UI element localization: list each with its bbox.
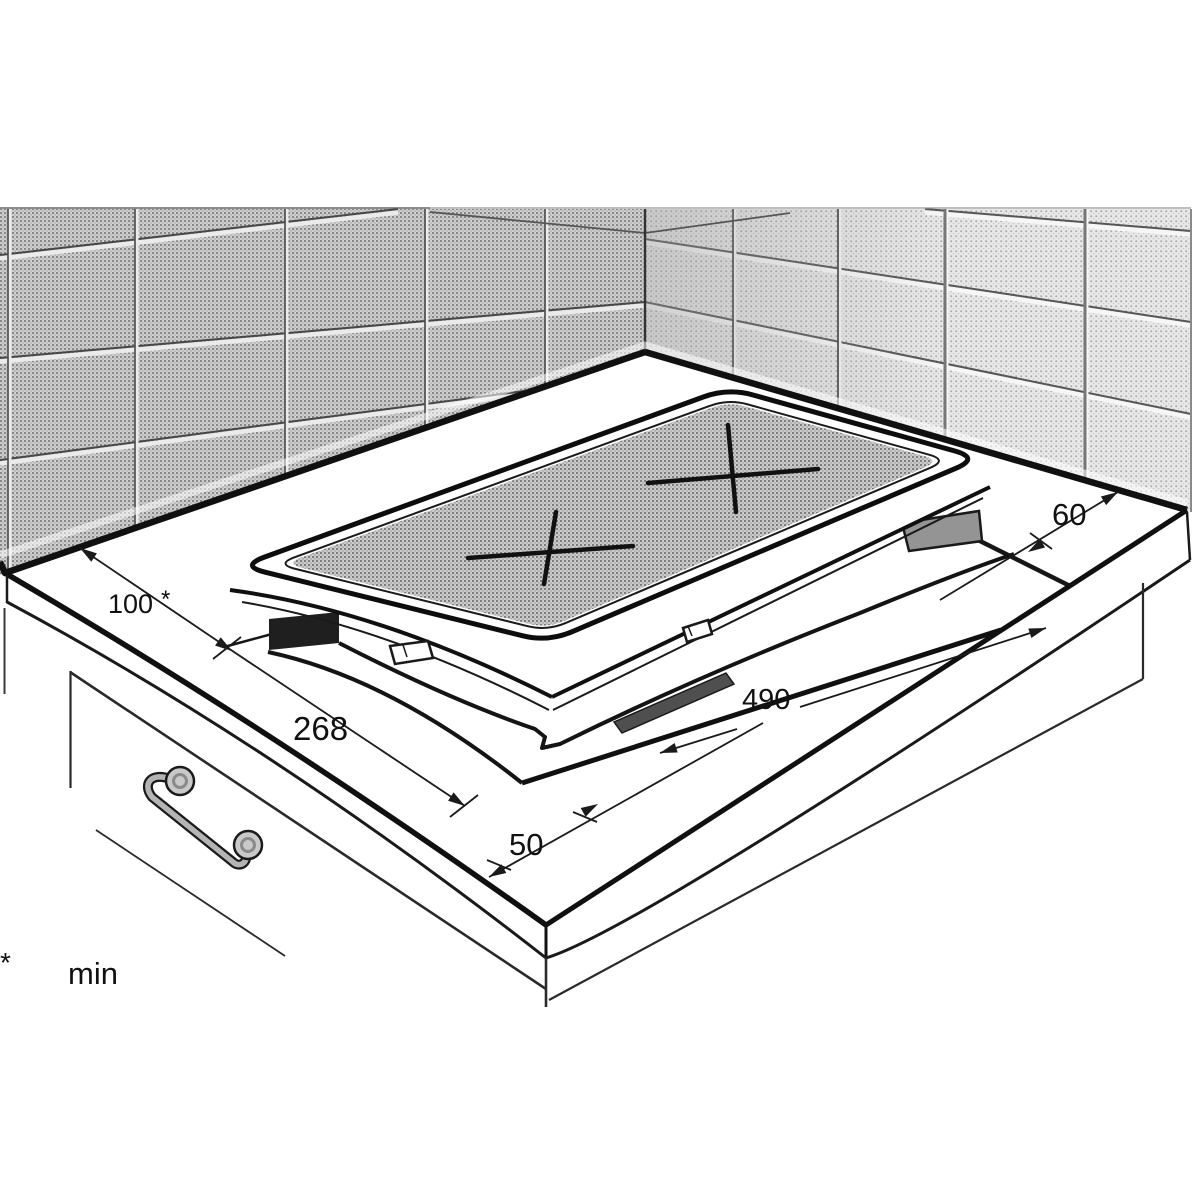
svg-text:50: 50 — [509, 827, 543, 862]
svg-text:*: * — [0, 947, 11, 978]
svg-text:100: 100 — [108, 589, 153, 619]
svg-text:490: 490 — [742, 684, 790, 716]
svg-text:268: 268 — [293, 710, 348, 747]
svg-text:min: min — [68, 956, 118, 991]
svg-text:*: * — [161, 586, 170, 613]
svg-text:60: 60 — [1052, 497, 1086, 532]
